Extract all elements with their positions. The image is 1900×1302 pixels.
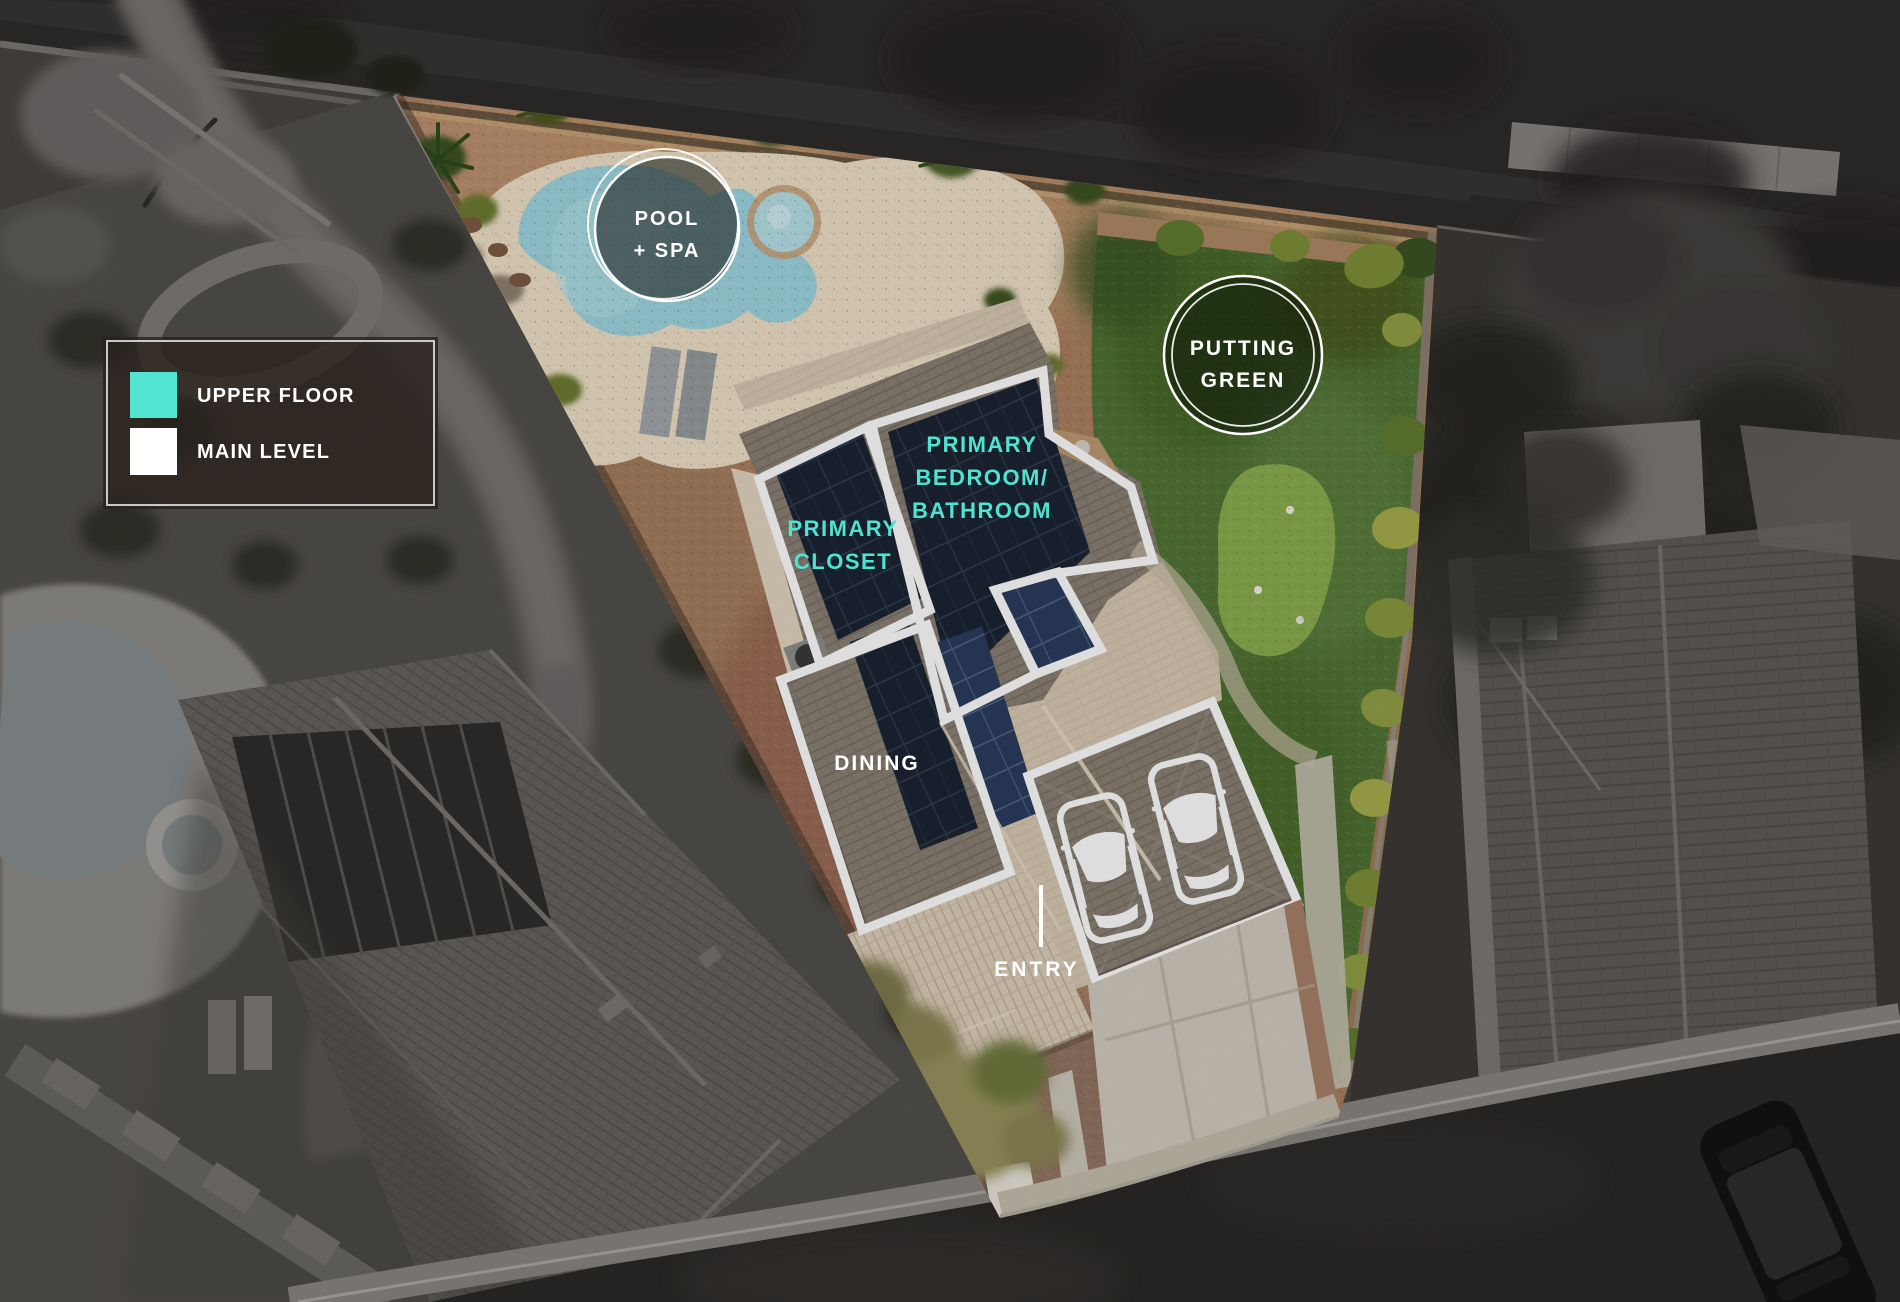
svg-text:BATHROOM: BATHROOM: [912, 498, 1052, 523]
svg-text:+ SPA: + SPA: [634, 240, 701, 262]
svg-text:PRIMARY: PRIMARY: [787, 516, 898, 541]
svg-text:MAIN LEVEL: MAIN LEVEL: [197, 441, 330, 463]
svg-text:POOL: POOL: [635, 208, 700, 230]
svg-text:DINING: DINING: [834, 752, 920, 775]
svg-text:GREEN: GREEN: [1201, 369, 1286, 392]
svg-text:PUTTING: PUTTING: [1190, 337, 1296, 360]
svg-text:UPPER FLOOR: UPPER FLOOR: [197, 385, 355, 407]
svg-text:CLOSET: CLOSET: [794, 549, 892, 574]
svg-text:PRIMARY: PRIMARY: [926, 432, 1037, 457]
svg-text:ENTRY: ENTRY: [994, 958, 1079, 981]
svg-text:BEDROOM/: BEDROOM/: [916, 465, 1049, 490]
